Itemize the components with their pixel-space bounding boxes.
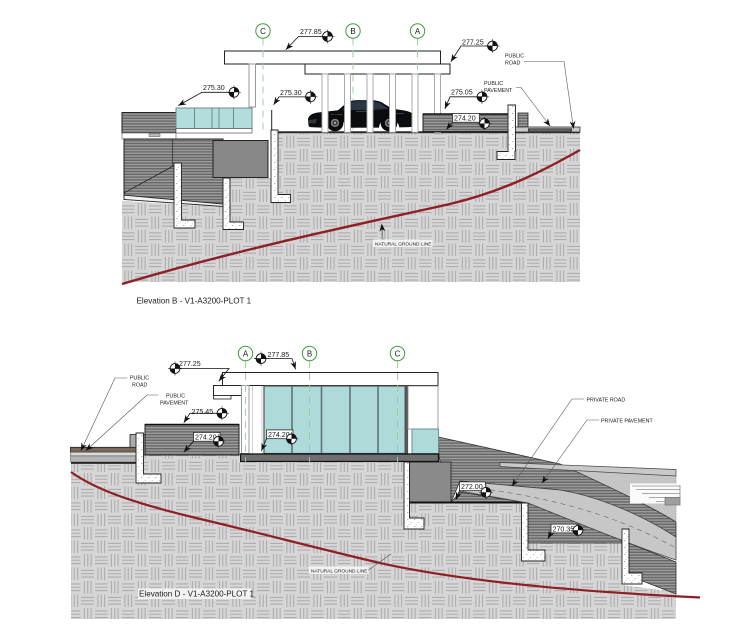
svg-text:274.20: 274.20 <box>454 115 476 123</box>
svg-text:C: C <box>260 27 266 36</box>
svg-text:PRIVATE ROAD: PRIVATE ROAD <box>587 398 626 404</box>
svg-text:277.85: 277.85 <box>300 28 322 36</box>
svg-text:ROAD: ROAD <box>132 383 147 389</box>
svg-text:275.30: 275.30 <box>203 84 225 92</box>
svg-text:PAVEMENT: PAVEMENT <box>484 88 513 94</box>
svg-text:PUBLIC: PUBLIC <box>505 54 524 60</box>
svg-text:277.25: 277.25 <box>462 38 484 46</box>
svg-text:Elevation B - V1-A3200-PLOT 1: Elevation B - V1-A3200-PLOT 1 <box>137 297 252 306</box>
svg-text:PUBLIC: PUBLIC <box>484 81 503 87</box>
svg-text:272.00: 272.00 <box>461 483 483 491</box>
svg-text:B: B <box>307 350 312 359</box>
svg-text:275.30: 275.30 <box>280 89 302 97</box>
svg-text:NATURAL GROUND LINE: NATURAL GROUND LINE <box>375 242 432 248</box>
svg-text:277.85: 277.85 <box>268 351 290 359</box>
svg-text:ROAD: ROAD <box>505 61 520 67</box>
svg-text:A: A <box>415 27 421 36</box>
svg-text:NATURAL GROUND LINE: NATURAL GROUND LINE <box>311 569 368 575</box>
svg-text:B: B <box>350 27 355 36</box>
svg-text:PAVEMENT: PAVEMENT <box>160 401 189 407</box>
svg-text:PUBLIC: PUBLIC <box>166 394 185 400</box>
svg-text:275.45: 275.45 <box>192 408 214 416</box>
svg-text:PRIVATE PAVEMENT: PRIVATE PAVEMENT <box>601 419 653 425</box>
svg-text:A: A <box>243 350 249 359</box>
svg-text:277.25: 277.25 <box>179 360 201 368</box>
svg-text:270.35: 270.35 <box>553 525 575 533</box>
svg-text:C: C <box>395 350 401 359</box>
svg-text:275.05: 275.05 <box>451 89 473 97</box>
svg-text:PUBLIC: PUBLIC <box>130 376 149 382</box>
svg-text:Elevation D - V1-A3200-PLOT 1: Elevation D - V1-A3200-PLOT 1 <box>139 590 255 599</box>
